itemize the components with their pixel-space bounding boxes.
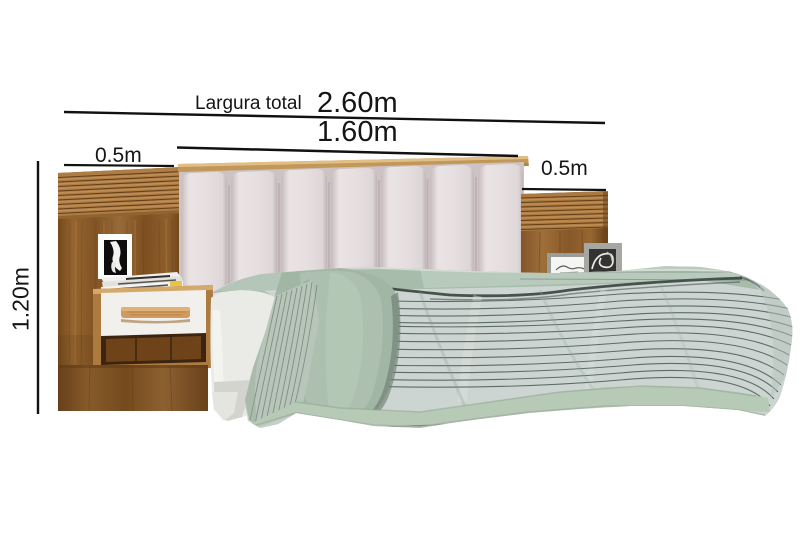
svg-text:Largura total: Largura total — [195, 93, 302, 114]
svg-text:2.60m: 2.60m — [317, 87, 398, 119]
svg-text:0.5m: 0.5m — [95, 144, 142, 167]
svg-text:1.20m: 1.20m — [8, 267, 34, 331]
svg-text:0.5m: 0.5m — [541, 157, 588, 180]
svg-text:1.60m: 1.60m — [317, 116, 398, 148]
